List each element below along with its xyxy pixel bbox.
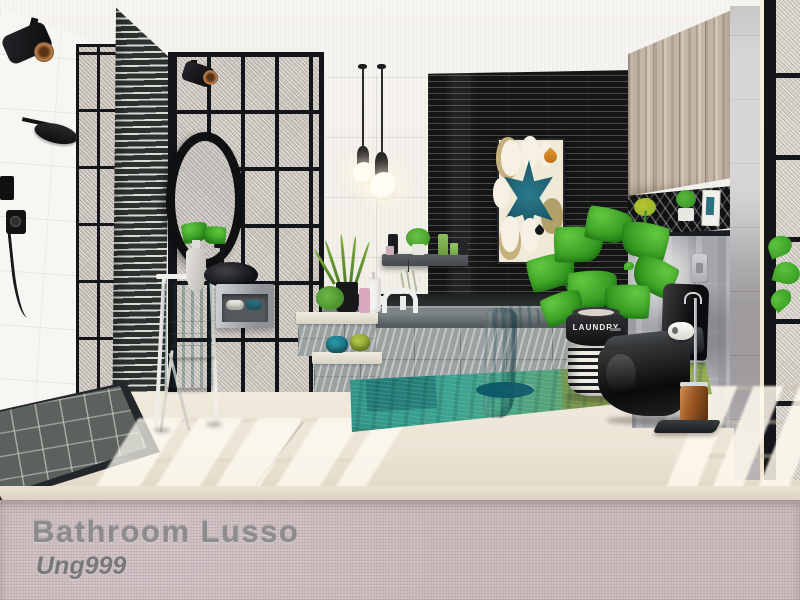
banner: Bathroom Lusso Ung999 bbox=[0, 500, 800, 600]
vanity-towel-white bbox=[226, 300, 244, 310]
pendant-cord-1 bbox=[362, 68, 364, 152]
towel-roll-green bbox=[350, 334, 370, 351]
mixer-dial bbox=[10, 216, 21, 227]
banner-author: Ung999 bbox=[36, 552, 126, 581]
vanity bbox=[180, 222, 280, 340]
vase-plant-leaf bbox=[201, 224, 227, 245]
bathroom-render-scene: LAUNDRY bbox=[0, 0, 800, 600]
soap-bottle-pink bbox=[359, 288, 370, 313]
shower-control-panel bbox=[0, 176, 14, 200]
teal-towel-pool bbox=[476, 382, 534, 398]
toilet-brush-stand bbox=[648, 292, 720, 438]
shelf-perfume bbox=[386, 246, 394, 255]
sink-faucet-spout bbox=[214, 244, 226, 248]
brush-stand-base bbox=[653, 420, 722, 433]
niche-pot bbox=[678, 208, 694, 221]
green-candle-tall bbox=[438, 234, 448, 255]
banner-title: Bathroom Lusso bbox=[32, 514, 299, 550]
niche-picture-frame bbox=[701, 190, 720, 227]
flower-vase bbox=[186, 248, 206, 292]
vanity-towel-teal bbox=[246, 300, 262, 310]
shelf-plant-pot bbox=[412, 244, 425, 255]
toilet-brush-cup bbox=[680, 386, 708, 424]
niche-plant-green bbox=[676, 190, 696, 208]
tub-shelf bbox=[382, 254, 468, 266]
stand-hook bbox=[684, 292, 702, 304]
light-switch bbox=[692, 254, 707, 282]
teal-towel-drape bbox=[482, 307, 518, 418]
shelf-dark-bottle bbox=[459, 238, 467, 255]
spotlight-lens bbox=[203, 70, 218, 85]
green-candle-short bbox=[450, 243, 458, 255]
spotlight-lens bbox=[34, 42, 54, 62]
tub-faucet-stem bbox=[400, 296, 406, 310]
towel-roll-blue bbox=[326, 336, 348, 353]
soap-pump bbox=[372, 272, 375, 279]
tub-step-lower-tread bbox=[312, 352, 382, 364]
small-leafy-plant bbox=[316, 286, 344, 310]
shower-head bbox=[22, 112, 80, 158]
tub-faucet-spout bbox=[380, 296, 386, 305]
ceiling-spotlight-left bbox=[2, 18, 64, 72]
pendant-bulb-2 bbox=[370, 172, 398, 200]
pendant-cord-2 bbox=[381, 68, 383, 160]
ceiling-spotlight-partition bbox=[183, 60, 223, 92]
